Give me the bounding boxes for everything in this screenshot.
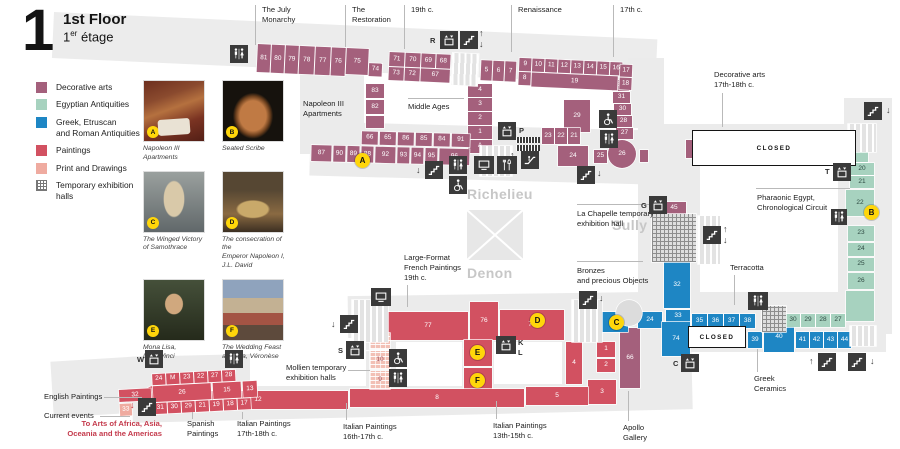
room-13: 13 <box>571 60 584 74</box>
decorative-swatch <box>36 82 47 93</box>
closed-wing-south: CLOSED <box>688 326 746 348</box>
elevator-letter-C: C <box>673 359 678 368</box>
arrow-down-red-icon <box>130 401 135 410</box>
elevator-icon <box>498 122 516 140</box>
toilets-icon <box>600 130 618 148</box>
stairs-icon <box>460 31 478 49</box>
legend-item: Egyptian Antiquities <box>36 99 140 110</box>
area-label: Pharaonic Egypt, Chronological Circuit <box>757 193 827 213</box>
room-18: 18 <box>619 77 632 90</box>
room-26: 26 <box>153 383 212 402</box>
room-8: 8 <box>350 389 524 407</box>
room-2: 2 <box>468 112 492 125</box>
prints-swatch <box>36 163 47 174</box>
arrow-down-icon <box>479 40 484 49</box>
room-21: 21 <box>196 400 210 412</box>
label-leader <box>348 370 370 371</box>
toilets-icon <box>831 209 847 225</box>
page-subtitle: 1er étage <box>63 29 114 44</box>
elevator-icon <box>649 196 667 214</box>
room-4: 4 <box>566 342 582 384</box>
room-30: 30 <box>786 314 800 327</box>
room-75: 75 <box>346 48 369 75</box>
room-24: 24 <box>848 243 874 256</box>
legend-item-label: Egyptian Antiquities <box>56 99 129 110</box>
room-28: 28 <box>816 314 830 327</box>
room-25: 25 <box>848 258 874 271</box>
legend-item: Greek, Etruscan and Roman Antiquities <box>36 117 140 140</box>
map-marker-E: E <box>470 345 485 360</box>
area-label: Italian Paintings 16th-17th c. <box>343 422 397 442</box>
label-leader <box>628 391 629 421</box>
room-21: 21 <box>568 128 580 144</box>
arrow-up-icon <box>479 29 484 38</box>
room-3: 3 <box>588 380 616 404</box>
arrow-down-icon <box>416 166 421 175</box>
elevator-letter-S: S <box>338 346 343 355</box>
louvre-pyramid <box>467 210 523 260</box>
label-leader <box>346 403 347 420</box>
wing-richelieu: Richelieu <box>467 186 533 202</box>
artwork-caption: The Winged Victory of Samothrace <box>143 236 207 254</box>
room <box>640 150 648 162</box>
room-9: 9 <box>370 371 390 389</box>
accessible-toilet-icon <box>449 176 467 194</box>
room-17: 17 <box>237 398 251 410</box>
legend-item: Print and Drawings <box>36 163 140 174</box>
artwork-caption: The consecration of the Emperor Napoleon… <box>222 236 286 271</box>
era-label: The July Monarchy <box>262 5 295 25</box>
map-marker-D: D <box>530 313 545 328</box>
area-label: Middle Ages <box>408 102 449 112</box>
artwork-thumbnail-C: C <box>143 171 205 233</box>
artwork-highlights: ANapoleon III ApartmentsBSeated ScribeCT… <box>143 80 293 362</box>
map-marker-C: C <box>609 315 624 330</box>
toilets-icon <box>389 369 407 387</box>
legend: Decorative artsEgyptian AntiquitiesGreek… <box>36 82 140 209</box>
room-22: 22 <box>194 371 208 383</box>
toilets-icon <box>230 45 248 63</box>
arrow-down-icon <box>870 357 875 366</box>
map-marker-B: B <box>864 205 879 220</box>
area-label: To Arts of Africa, Asia, Oceania and the… <box>58 419 162 439</box>
room-66: 66 <box>620 328 640 388</box>
room <box>846 291 874 321</box>
legend-item: Temporary exhibition halls <box>36 180 140 203</box>
floor-number: 1 <box>22 2 54 60</box>
area-label: Italian Paintings 13th-15th c. <box>493 421 547 441</box>
egyptian-swatch <box>36 99 47 110</box>
legend-item: Decorative arts <box>36 82 140 93</box>
room-68: 68 <box>436 54 451 69</box>
room-17: 17 <box>620 64 633 77</box>
artwork-thumbnail-B: B <box>222 80 284 142</box>
label-rule <box>577 204 649 205</box>
room-32: 32 <box>664 262 690 308</box>
label-leader <box>242 412 243 419</box>
room <box>451 53 478 86</box>
accessible-toilet-icon <box>599 110 617 128</box>
label-leader <box>722 93 723 127</box>
legend-item-label: Print and Drawings <box>56 163 127 174</box>
room-74: 74 <box>662 322 690 356</box>
room-70: 70 <box>405 53 421 68</box>
room-30: 30 <box>168 402 182 414</box>
stairs-icon <box>703 226 721 244</box>
room-77: 77 <box>315 47 331 76</box>
room-22: 22 <box>555 128 567 144</box>
artwork-thumbnail-E: E <box>143 279 205 341</box>
room-76: 76 <box>470 302 498 340</box>
toilets-icon <box>449 156 467 174</box>
room-91: 91 <box>452 134 470 147</box>
room-24: 24 <box>558 146 588 166</box>
room-8: 8 <box>518 72 531 86</box>
era-label: The Restoration <box>352 5 391 25</box>
marker-letter-badge: F <box>226 325 238 337</box>
arrow-down-icon <box>597 169 602 178</box>
map-marker-A: A <box>355 153 370 168</box>
legend-item-label: Greek, Etruscan and Roman Antiquities <box>56 117 140 140</box>
artwork-highlight-A: ANapoleon III Apartments <box>143 80 207 163</box>
room-84: 84 <box>434 133 450 146</box>
arrow-up-icon <box>809 357 814 366</box>
marker-letter-badge: E <box>147 325 159 337</box>
room-5: 5 <box>526 387 588 405</box>
era-tick <box>345 5 346 47</box>
room-92: 92 <box>375 147 395 164</box>
room-39: 39 <box>748 332 762 348</box>
room-69: 69 <box>421 53 436 68</box>
auditorium-icon <box>474 156 494 174</box>
escalator-bank <box>516 137 540 143</box>
elevator-letter-W: W <box>137 355 144 364</box>
label-leader <box>104 397 142 398</box>
elevator-letter-P: P <box>519 126 524 135</box>
stairs-icon <box>579 291 597 309</box>
room <box>652 214 696 262</box>
closed-wing-north: CLOSED <box>692 130 856 166</box>
room-18: 18 <box>223 399 237 411</box>
area-label: Large-Format French Paintings 19th c. <box>404 253 461 283</box>
elevator-icon <box>346 341 364 359</box>
paintings-swatch <box>36 145 47 156</box>
room-29: 29 <box>801 314 815 327</box>
room-33: 33 <box>666 310 690 322</box>
elevator-letter-G: G <box>641 201 647 210</box>
elevator-letter-K: K <box>518 338 523 347</box>
era-label: 17th c. <box>620 5 643 15</box>
stairs-icon <box>864 102 882 120</box>
room-71: 71 <box>389 52 405 67</box>
stairs-icon <box>340 315 358 333</box>
area-label: Mollien temporary exhibition halls <box>286 363 346 383</box>
room-23: 23 <box>542 128 554 144</box>
room-19: 19 <box>531 72 618 90</box>
room-27: 27 <box>831 314 845 327</box>
elevator-icon <box>440 31 458 49</box>
era-label: Renaissance <box>518 5 562 15</box>
room-15: 15 <box>213 382 242 399</box>
label-leader <box>757 349 758 372</box>
room-29: 29 <box>182 401 196 413</box>
arrow-down-icon <box>599 294 604 303</box>
room-27: 27 <box>208 371 222 383</box>
arrow-down-icon <box>886 106 891 115</box>
room-10: 10 <box>370 351 390 369</box>
room-42: 42 <box>810 332 823 348</box>
room-73: 73 <box>388 67 404 81</box>
room <box>850 326 876 346</box>
room-14: 14 <box>584 61 597 75</box>
room-90: 90 <box>333 146 345 162</box>
stairs-icon <box>138 398 156 416</box>
area-label: Apollo Gallery <box>623 423 647 443</box>
room-5: 5 <box>480 60 492 80</box>
era-tick <box>255 5 256 45</box>
area-label: Terracotta <box>730 263 764 273</box>
legend-item-label: Decorative arts <box>56 82 112 93</box>
subtitle-superscript: er <box>70 29 77 38</box>
marker-letter-badge: D <box>226 217 238 229</box>
area-label: Napoleon III Apartments <box>303 99 344 119</box>
label-leader <box>407 285 408 307</box>
room-85: 85 <box>416 133 432 146</box>
room-24: 24 <box>152 374 166 386</box>
greek-swatch <box>36 117 47 128</box>
label-leader <box>496 401 497 419</box>
room-9: 9 <box>519 58 532 72</box>
floor-map-page: Richelieu Sully Denon 323130282729232221… <box>0 0 900 449</box>
area-label: Italian Paintings 17th-18th c. <box>237 419 291 439</box>
artwork-highlight-D: DThe consecration of the Emperor Napoleo… <box>222 171 286 271</box>
legend-item: Paintings <box>36 145 140 156</box>
elevator-icon <box>833 163 851 181</box>
room-27: 27 <box>616 128 633 139</box>
stairs-icon <box>848 353 866 371</box>
elevator-letter-T: T <box>825 167 830 176</box>
map-marker-F: F <box>470 373 485 388</box>
room-6: 6 <box>492 61 504 81</box>
room-23: 23 <box>848 226 874 241</box>
artwork-caption: Napoleon III Apartments <box>143 145 207 163</box>
room-81: 81 <box>257 44 271 73</box>
room-12: 12 <box>558 60 571 74</box>
stairs-icon <box>425 161 443 179</box>
room-13: 13 <box>243 381 258 398</box>
room-M: M <box>166 373 180 385</box>
room-67: 67 <box>420 68 450 82</box>
area-label: Greek Ceramics <box>754 374 786 394</box>
room-94: 94 <box>411 148 423 164</box>
room-80: 80 <box>271 45 285 74</box>
room-1: 1 <box>597 342 615 357</box>
auditorium-icon <box>371 288 391 306</box>
room-66: 66 <box>362 131 378 144</box>
area-label: Decorative arts 17th-18th c. <box>714 70 765 90</box>
room-43: 43 <box>824 332 837 348</box>
label-rule <box>577 261 643 262</box>
room-25: 25 <box>594 150 607 163</box>
room-28: 28 <box>222 370 236 382</box>
room-93: 93 <box>397 147 409 163</box>
elevator-icon <box>145 350 163 368</box>
arrow-down-icon <box>331 320 336 329</box>
room-7: 7 <box>504 61 516 81</box>
legend-item-label: Paintings <box>56 145 90 156</box>
era-tick <box>404 5 405 49</box>
room <box>366 116 384 128</box>
legend-item-label: Temporary exhibition halls <box>56 180 133 203</box>
era-label: 19th c. <box>411 5 434 15</box>
arrow-up-icon <box>723 225 728 234</box>
escalator-icon <box>521 151 539 169</box>
room-23: 23 <box>180 372 194 384</box>
marker-letter-badge: A <box>147 126 159 138</box>
room-15: 15 <box>597 61 610 75</box>
room-21: 21 <box>850 176 874 188</box>
room-76: 76 <box>331 47 346 76</box>
accessible-toilet-icon <box>389 349 407 367</box>
room-74: 74 <box>369 63 383 77</box>
area-label: La Chapelle temporary exhibition hall <box>577 209 654 229</box>
label-rule <box>408 98 464 99</box>
room-11: 11 <box>545 59 558 73</box>
room-41: 41 <box>796 332 809 348</box>
area-label: Spanish Paintings <box>187 419 218 439</box>
marker-letter-badge: B <box>226 126 238 138</box>
room-10: 10 <box>532 58 545 72</box>
artwork-highlight-C: CThe Winged Victory of Samothrace <box>143 171 207 271</box>
room-78: 78 <box>299 46 315 75</box>
wing-denon: Denon <box>467 265 513 281</box>
label-leader <box>100 416 130 417</box>
room-86: 86 <box>398 132 414 145</box>
label-leader <box>192 412 193 419</box>
era-tick <box>511 5 512 52</box>
toilets-icon <box>748 292 768 310</box>
closed-label: CLOSED <box>700 334 735 341</box>
page-title: 1st Floor <box>63 11 126 28</box>
era-tick <box>613 5 614 57</box>
room-26: 26 <box>848 273 874 289</box>
temp-swatch <box>36 180 47 191</box>
label-rule <box>756 188 850 189</box>
room-2: 2 <box>597 359 615 372</box>
stairs-icon <box>577 166 595 184</box>
label-leader <box>734 275 735 305</box>
room-79: 79 <box>285 45 299 74</box>
artwork-thumbnail-A: A <box>143 80 205 142</box>
restaurant-icon <box>497 156 517 174</box>
room-19: 19 <box>209 400 223 412</box>
artwork-caption: Seated Scribe <box>222 145 286 154</box>
room-72: 72 <box>404 68 420 82</box>
elevator-icon <box>496 336 516 354</box>
room-87: 87 <box>311 145 331 162</box>
area-label: English Paintings <box>44 392 102 402</box>
stairs-icon <box>818 353 836 371</box>
room-77: 77 <box>388 312 468 340</box>
marker-letter-badge: C <box>147 217 159 229</box>
area-label: Bronzes and precious Objects <box>577 266 648 286</box>
artwork-highlight-B: BSeated Scribe <box>222 80 286 163</box>
artwork-thumbnail-D: D <box>222 171 284 233</box>
room-65: 65 <box>380 132 396 145</box>
toilets-icon <box>225 350 243 368</box>
elevator-letter-R: R <box>430 36 435 45</box>
subtitle-text: étage <box>81 29 114 44</box>
artwork-thumbnail-F: F <box>222 279 284 341</box>
closed-label: CLOSED <box>757 145 792 152</box>
arrow-down-icon <box>723 236 728 245</box>
elevator-letter-L: L <box>518 348 523 357</box>
elevator-icon <box>681 354 699 372</box>
